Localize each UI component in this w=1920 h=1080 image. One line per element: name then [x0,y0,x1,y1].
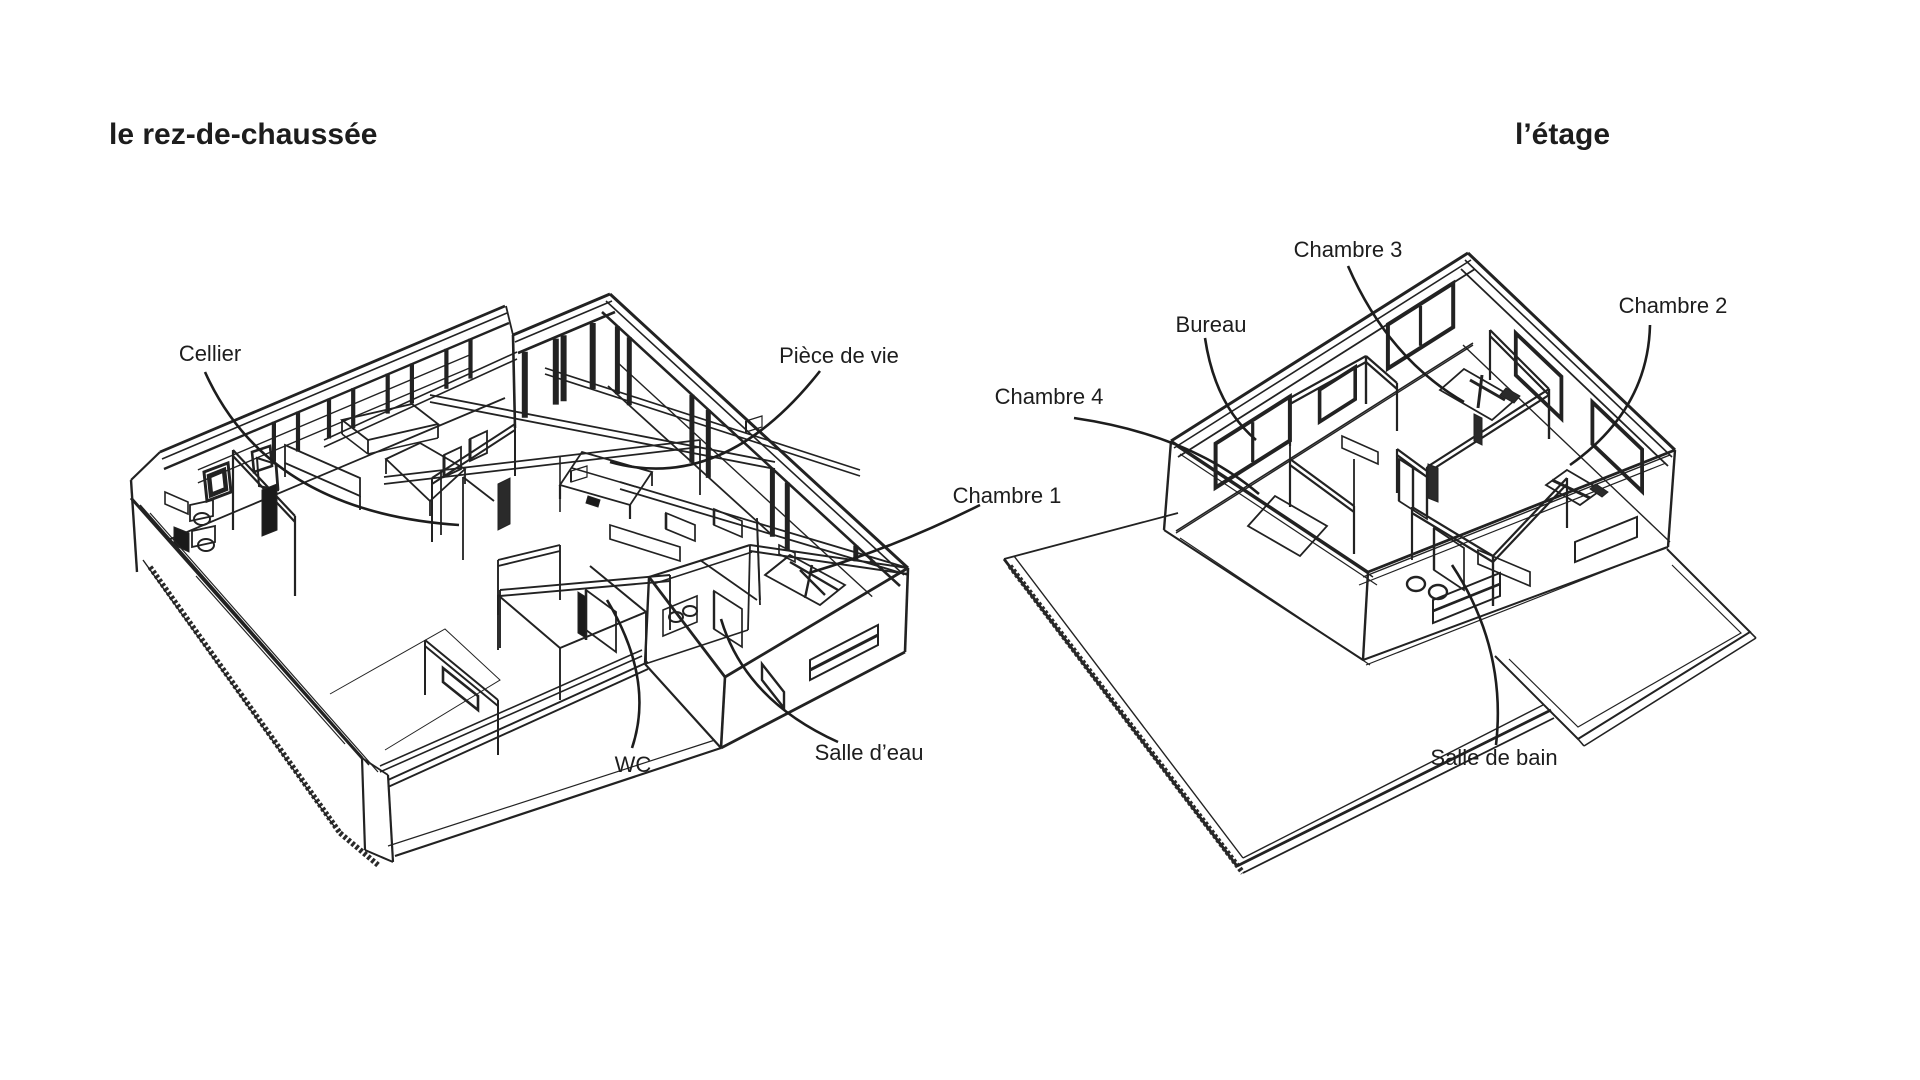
svg-text:Bureau: Bureau [1176,312,1247,337]
svg-text:WC: WC [615,752,652,777]
svg-text:l’étage: l’étage [1515,118,1610,151]
svg-text:le rez-de-chaussée: le rez-de-chaussée [109,118,377,151]
svg-text:Salle d’eau: Salle d’eau [815,740,924,765]
svg-text:Salle de bain: Salle de bain [1430,745,1557,770]
svg-text:Pièce de vie: Pièce de vie [779,343,899,368]
svg-text:Chambre 3: Chambre 3 [1294,237,1403,262]
svg-text:Cellier: Cellier [179,341,241,366]
svg-text:Chambre 4: Chambre 4 [995,384,1104,409]
svg-text:Chambre 1: Chambre 1 [953,483,1062,508]
svg-text:Chambre 2: Chambre 2 [1619,293,1728,318]
